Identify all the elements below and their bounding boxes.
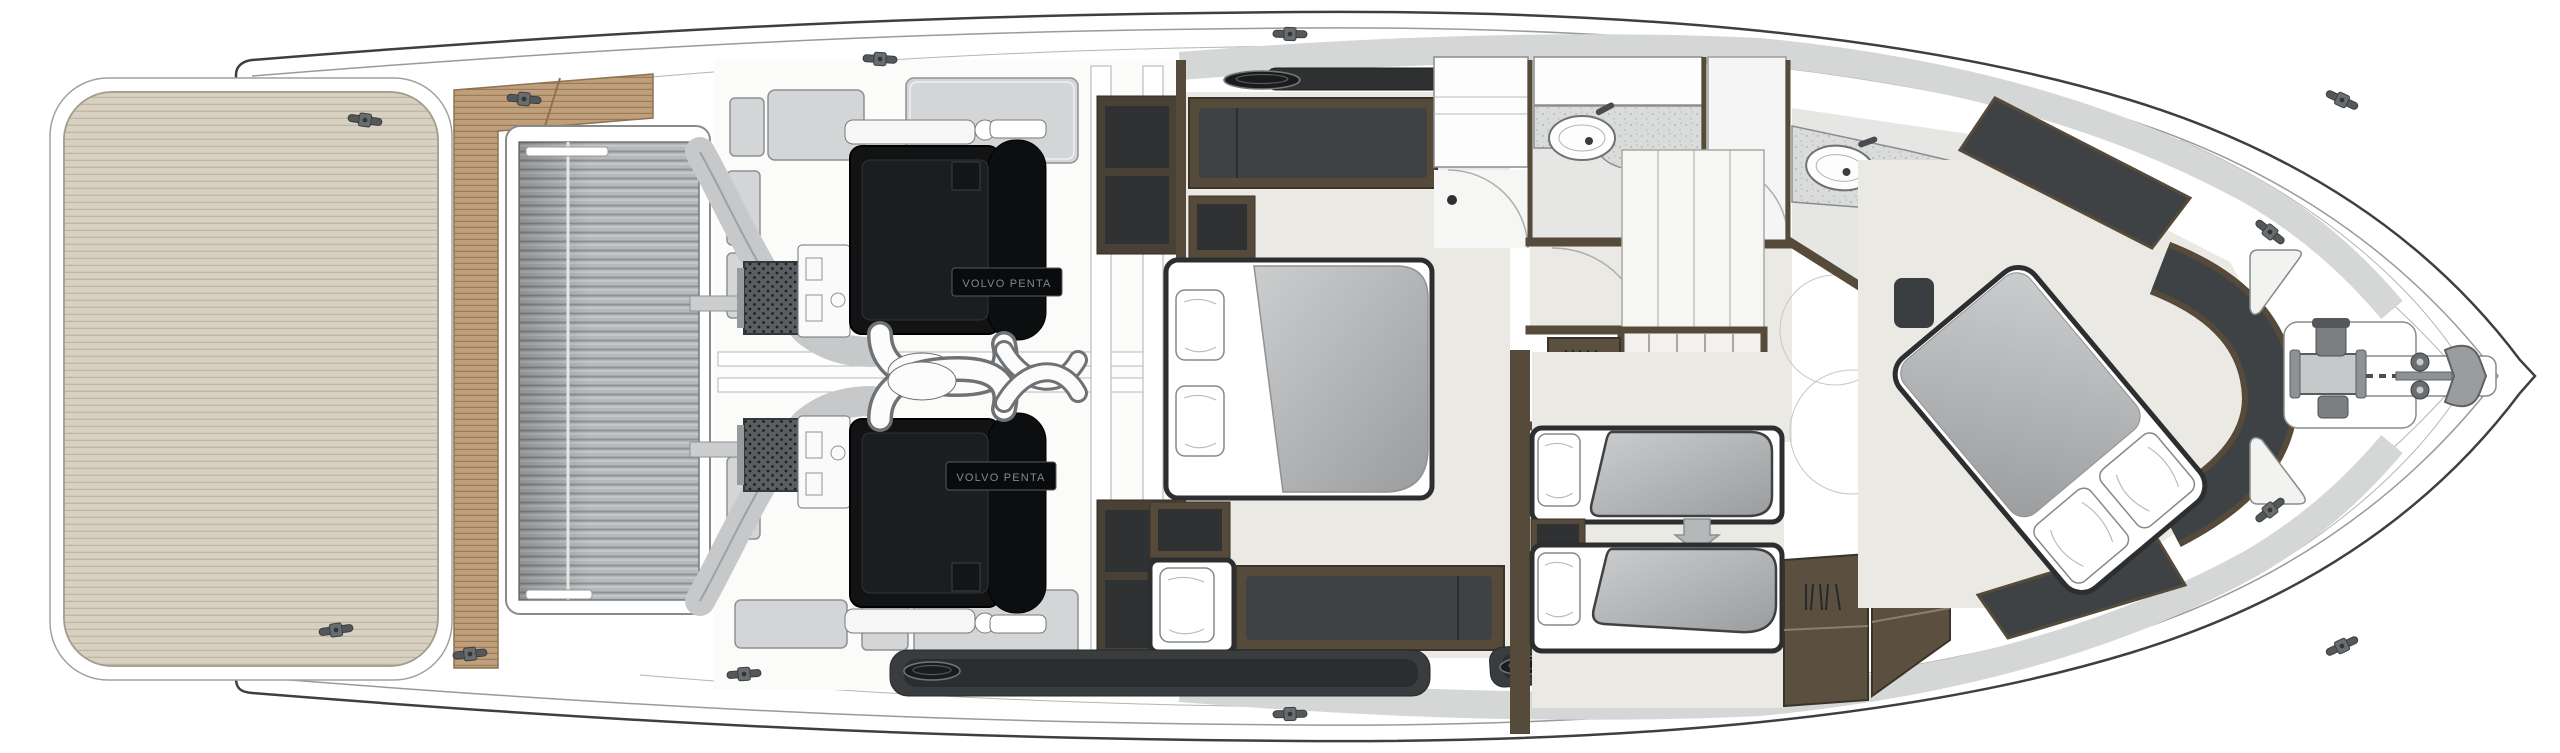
engine-label: VOLVO PENTA [956, 472, 1045, 484]
mid-bed-mattress [1254, 266, 1428, 492]
yacht-floorplan: VOLVO PENTA VOLVO PENTA [0, 0, 2560, 753]
berth-mattress [1591, 432, 1772, 516]
stairs-upper [1622, 150, 1764, 328]
mid-cabin-seat [1150, 560, 1234, 652]
cleat-icon [2324, 633, 2360, 659]
garage-latch-top [526, 147, 608, 156]
mid-cabin-sofa-bottom [1236, 566, 1504, 650]
vip-nightstand [1894, 278, 1934, 328]
pillow [1176, 290, 1224, 360]
twin-cabin [1531, 352, 1784, 708]
mid-bath-vestibule [1434, 57, 1530, 248]
cabin-divider-wall [1510, 350, 1530, 734]
tender-garage [506, 126, 710, 614]
door-handle [1447, 195, 1457, 205]
swim-platform [50, 78, 452, 680]
berth-mattress [1593, 549, 1776, 632]
wardrobe-vip-1 [1784, 554, 1868, 706]
cleat-icon [2324, 87, 2360, 113]
bath-cabinet [1534, 57, 1702, 105]
porthole-icon [904, 662, 960, 680]
linen-cabinet [1434, 57, 1528, 167]
mid-cabin-cabinet [1189, 196, 1255, 258]
engine-label: VOLVO PENTA [962, 278, 1051, 290]
berth-lower [1532, 545, 1782, 651]
pillow [1176, 386, 1224, 456]
mid-cabin-bed [1166, 260, 1432, 498]
berth-upper [1532, 428, 1782, 522]
garage-latch-bottom [526, 590, 592, 599]
engine-room: VOLVO PENTA VOLVO PENTA [690, 60, 1178, 690]
porthole-icon [1224, 71, 1300, 89]
mid-cabin-nightstand [1150, 502, 1230, 558]
floorplan-canvas: VOLVO PENTA VOLVO PENTA [0, 0, 2560, 753]
mid-cabin-sofa-top [1189, 98, 1437, 188]
engine-label-plate-starboard: VOLVO PENTA [946, 462, 1056, 490]
engine-label-plate-port: VOLVO PENTA [952, 268, 1062, 296]
engine-room-cabinet-top [1097, 96, 1177, 254]
